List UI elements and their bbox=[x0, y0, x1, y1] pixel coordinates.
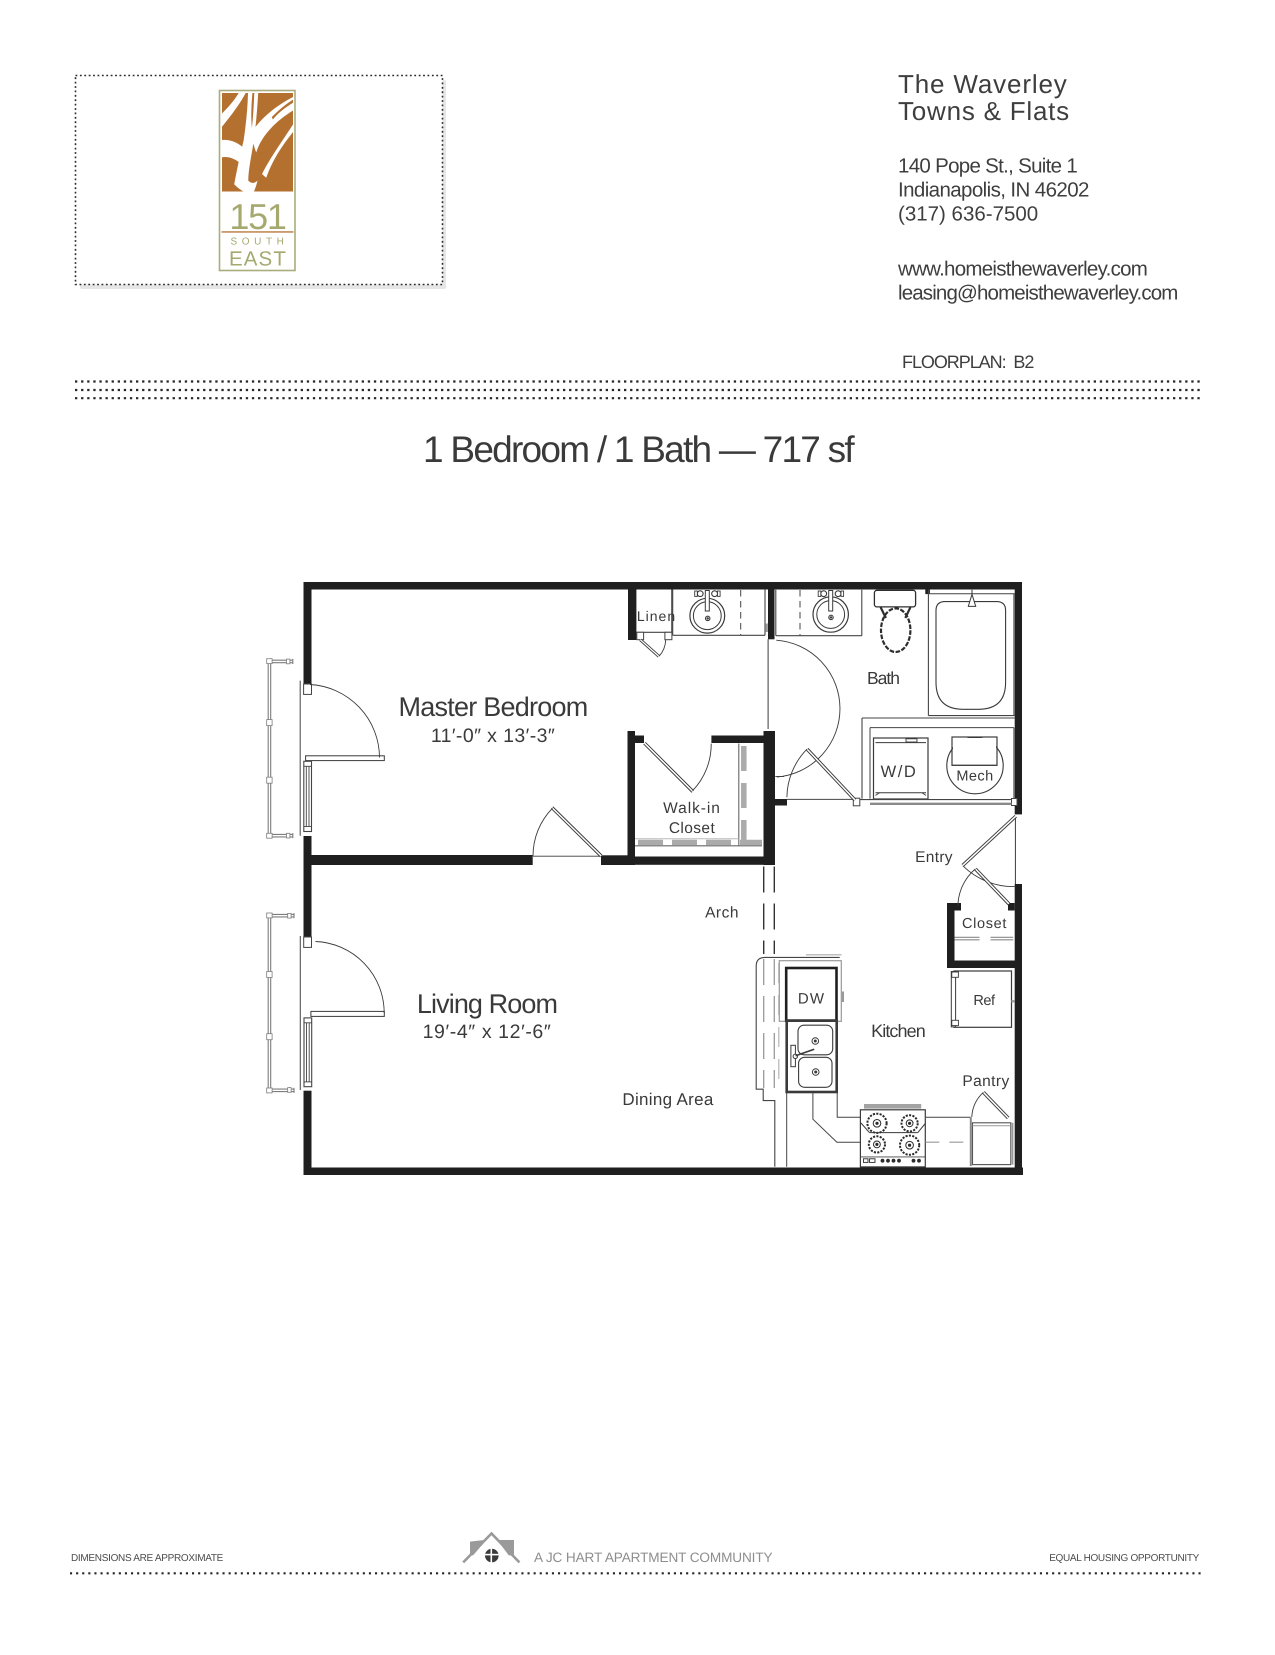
svg-text:Dining Area: Dining Area bbox=[622, 1090, 713, 1109]
svg-text:Closet: Closet bbox=[962, 916, 1007, 932]
svg-text:Closet: Closet bbox=[669, 820, 716, 837]
svg-text:11′-0″ x 13′-3″: 11′-0″ x 13′-3″ bbox=[431, 725, 555, 747]
svg-text:Walk-in: Walk-in bbox=[663, 800, 721, 817]
svg-text:SOUTH: SOUTH bbox=[231, 237, 289, 248]
svg-text:(317) 636-7500: (317) 636-7500 bbox=[898, 203, 1038, 226]
svg-text:EQUAL HOUSING OPPORTUNITY: EQUAL HOUSING OPPORTUNITY bbox=[1049, 1553, 1199, 1564]
svg-text:Arch: Arch bbox=[705, 905, 739, 922]
svg-text:The Waverley: The Waverley bbox=[898, 69, 1068, 99]
svg-text:www.homeisthewaverley.com: www.homeisthewaverley.com bbox=[897, 258, 1147, 281]
svg-text:Kitchen: Kitchen bbox=[871, 1021, 925, 1041]
svg-text:Entry: Entry bbox=[915, 849, 953, 866]
svg-text:140 Pope St., Suite 1: 140 Pope St., Suite 1 bbox=[898, 155, 1077, 178]
svg-text:19′-4″ x 12′-6″: 19′-4″ x 12′-6″ bbox=[423, 1021, 552, 1043]
svg-text:Living Room: Living Room bbox=[417, 989, 557, 1019]
svg-text:EAST: EAST bbox=[229, 248, 287, 271]
svg-text:Ref: Ref bbox=[973, 993, 996, 1009]
svg-text:DIMENSIONS ARE APPROXIMATE: DIMENSIONS ARE APPROXIMATE bbox=[71, 1553, 224, 1564]
svg-text:Indianapolis, IN 46202: Indianapolis, IN 46202 bbox=[898, 179, 1089, 202]
svg-text:W/D: W/D bbox=[881, 763, 918, 781]
svg-text:Pantry: Pantry bbox=[962, 1073, 1009, 1090]
svg-text:Bath: Bath bbox=[867, 668, 899, 688]
svg-text:Linen: Linen bbox=[637, 608, 676, 624]
svg-text:DW: DW bbox=[798, 991, 825, 1008]
svg-text:leasing@homeisthewaverley.com: leasing@homeisthewaverley.com bbox=[898, 282, 1178, 305]
svg-text:Mech: Mech bbox=[956, 769, 993, 785]
svg-text:Master Bedroom: Master Bedroom bbox=[398, 692, 587, 722]
svg-text:Towns & Flats: Towns & Flats bbox=[898, 96, 1070, 126]
svg-text:FLOORPLAN: B2: FLOORPLAN: B2 bbox=[902, 352, 1034, 372]
svg-text:A JC HART APARTMENT COMMUNITY: A JC HART APARTMENT COMMUNITY bbox=[534, 1550, 773, 1565]
svg-text:1 Bedroom / 1 Bath — 717 sf: 1 Bedroom / 1 Bath — 717 sf bbox=[423, 429, 855, 470]
svg-text:151: 151 bbox=[229, 196, 285, 237]
